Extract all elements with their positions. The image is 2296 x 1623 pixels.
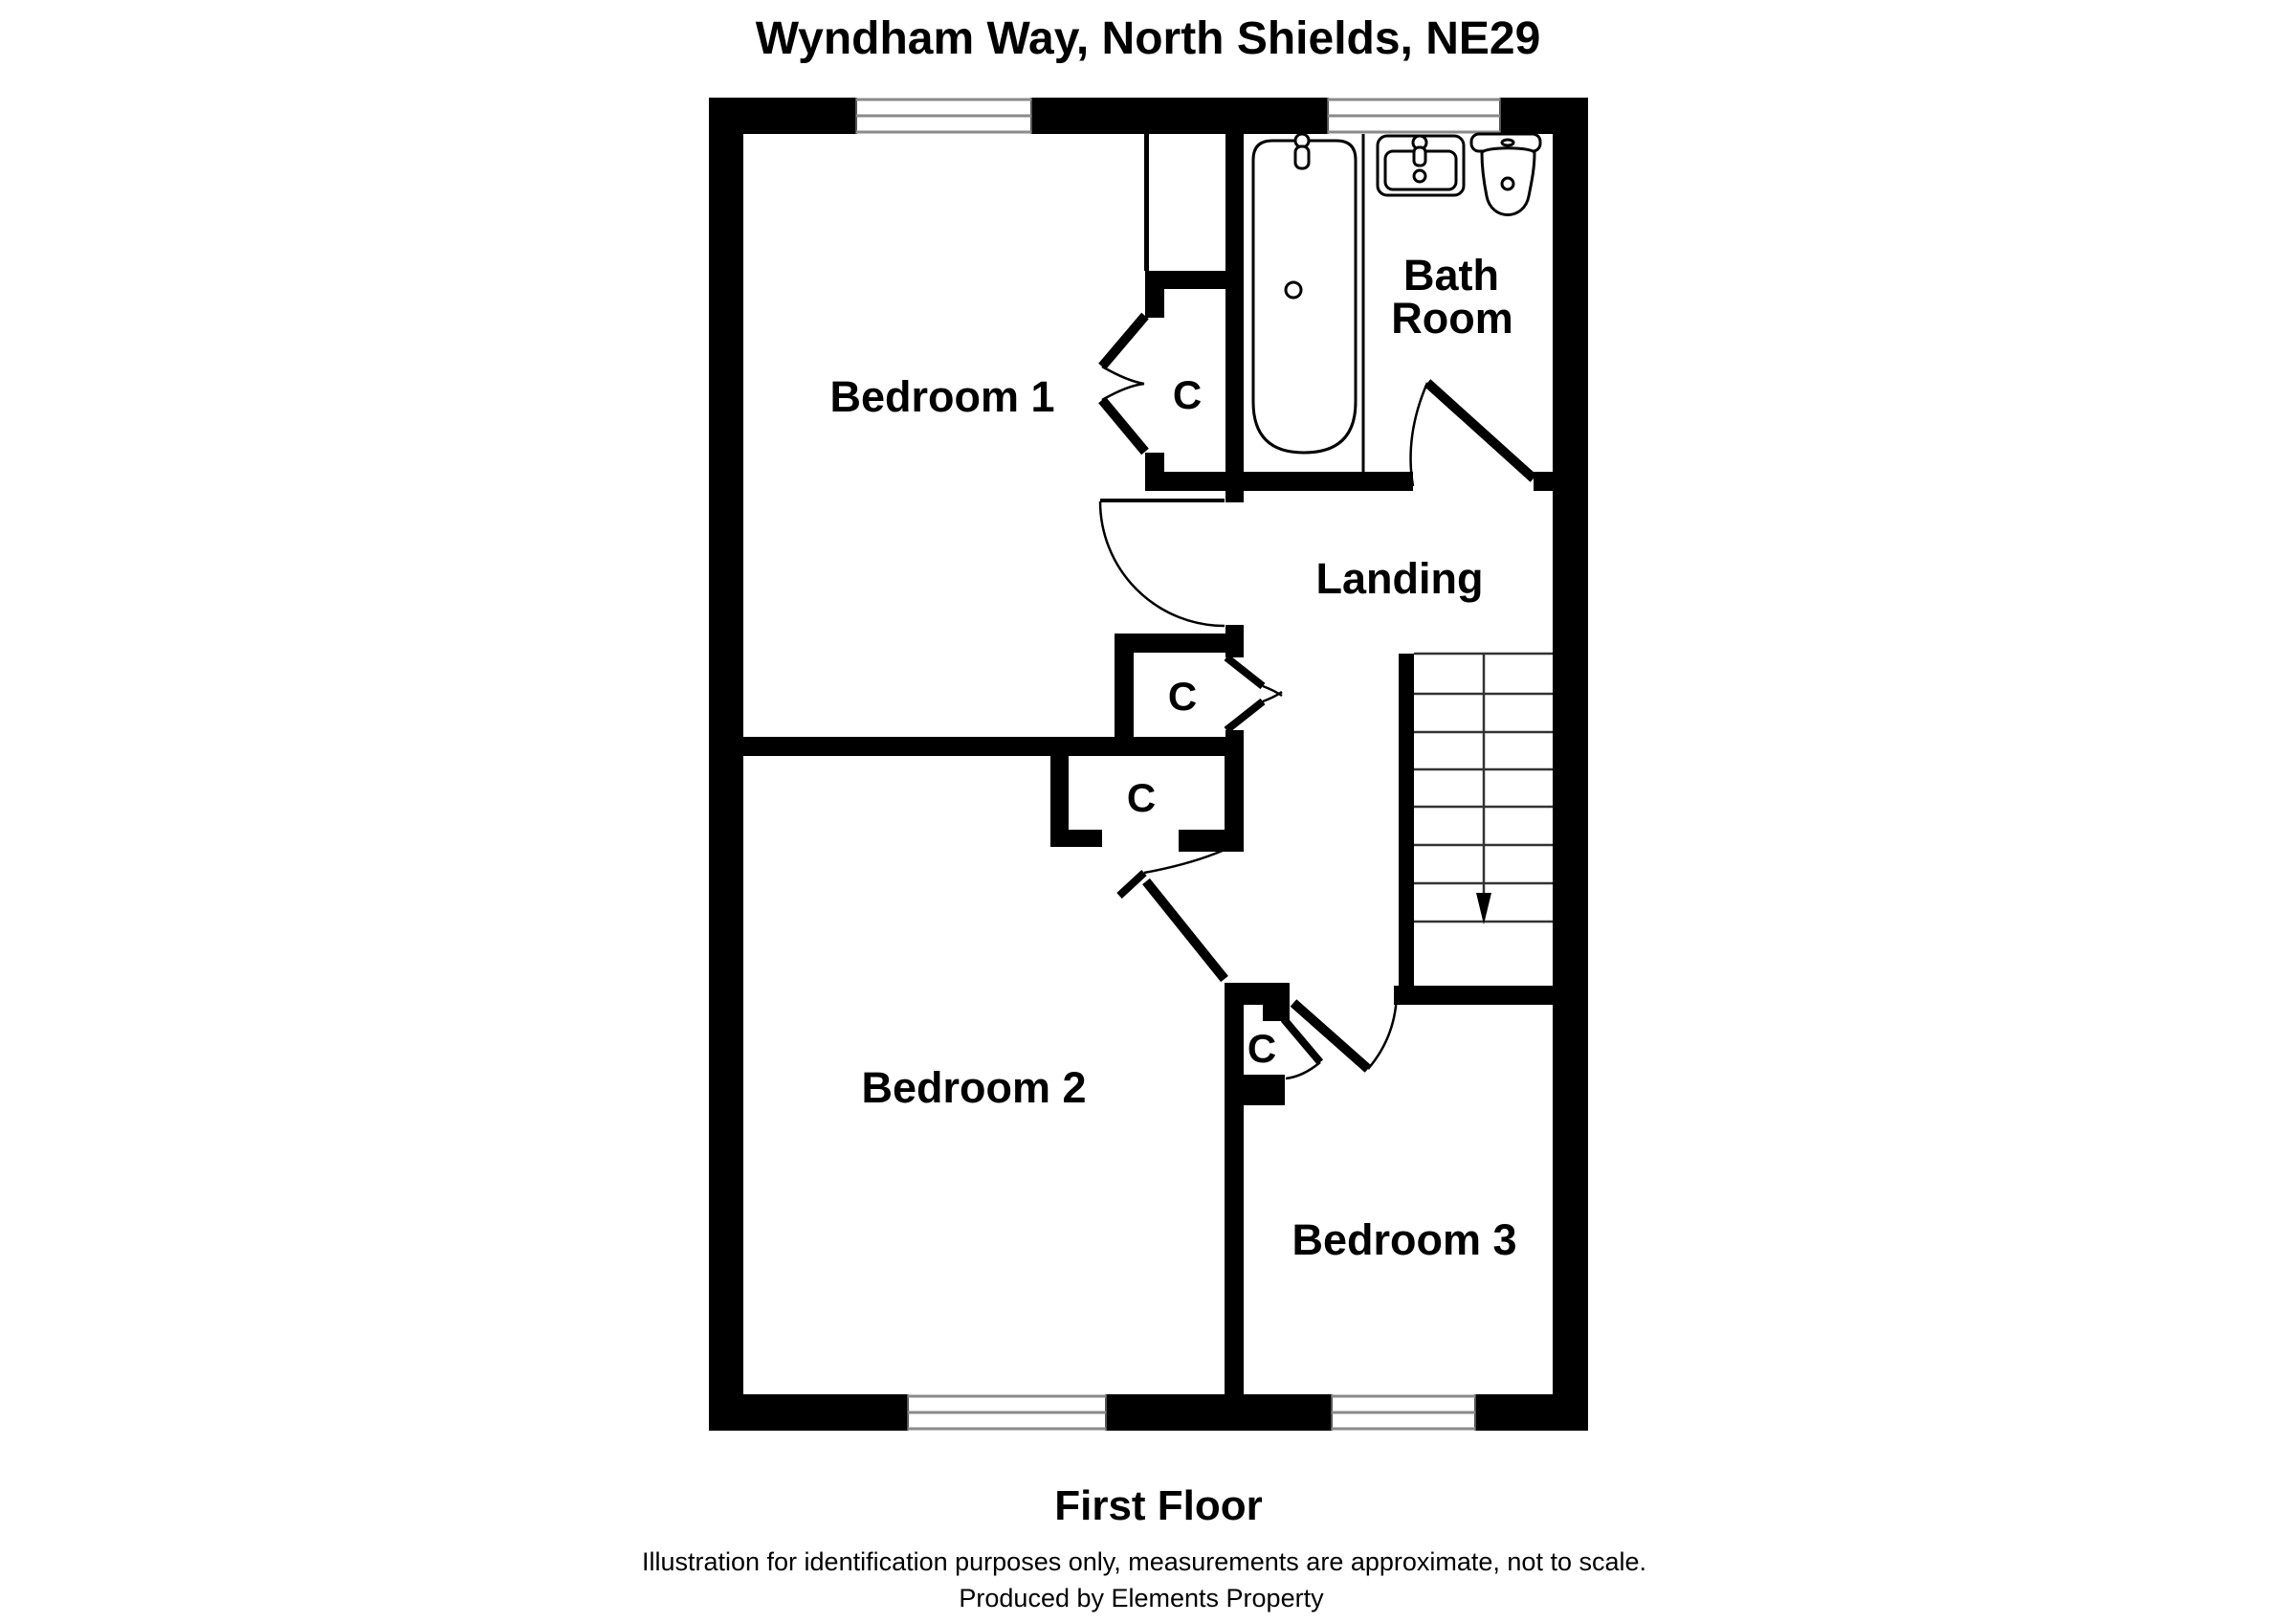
- closet-label-1: C: [1173, 372, 1202, 417]
- stairs-down-arrow-icon: [1476, 893, 1491, 924]
- toilet-icon: [1471, 134, 1540, 215]
- closet-label-4: C: [1247, 1026, 1276, 1071]
- page-title: Wyndham Way, North Shields, NE29: [756, 13, 1541, 64]
- bathroom-door: [1411, 383, 1534, 486]
- room-label-bathroom-line1: Bath: [1403, 251, 1499, 300]
- room-label-bedroom2: Bedroom 2: [861, 1063, 1086, 1112]
- closet-label-3: C: [1127, 775, 1156, 820]
- wash-basin-icon: [1378, 136, 1464, 195]
- closet3-door: [1119, 850, 1225, 896]
- window-bathroom-top: [1328, 98, 1500, 134]
- room-label-bedroom3: Bedroom 3: [1291, 1215, 1516, 1264]
- floor-plan-drawing: Wyndham Way, North Shields, NE29: [0, 0, 2296, 1623]
- floor-label: First Floor: [1054, 1482, 1263, 1529]
- staircase: [1414, 654, 1553, 924]
- room-label-landing: Landing: [1316, 554, 1484, 603]
- room-label-bathroom-line2: Room: [1391, 294, 1513, 343]
- closet1-doors: [1102, 316, 1145, 452]
- window-bedroom3-bottom: [1332, 1394, 1475, 1431]
- disclaimer-text: Illustration for identification purposes…: [642, 1547, 1646, 1576]
- floor-plan-page: Wyndham Way, North Shields, NE29: [0, 0, 2296, 1623]
- produced-by-text: Produced by Elements Property: [959, 1584, 1324, 1612]
- window-bedroom1-top: [856, 98, 1031, 134]
- bathtub-icon: [1253, 134, 1363, 472]
- window-bedroom2-bottom: [908, 1394, 1106, 1431]
- room-label-bedroom1: Bedroom 1: [829, 372, 1054, 421]
- closet2-doors: [1226, 657, 1282, 730]
- bedroom3-door: [1293, 990, 1397, 1069]
- bedroom2-door: [1146, 881, 1225, 979]
- bedroom1-door: [1100, 500, 1225, 626]
- closet-label-2: C: [1168, 674, 1197, 719]
